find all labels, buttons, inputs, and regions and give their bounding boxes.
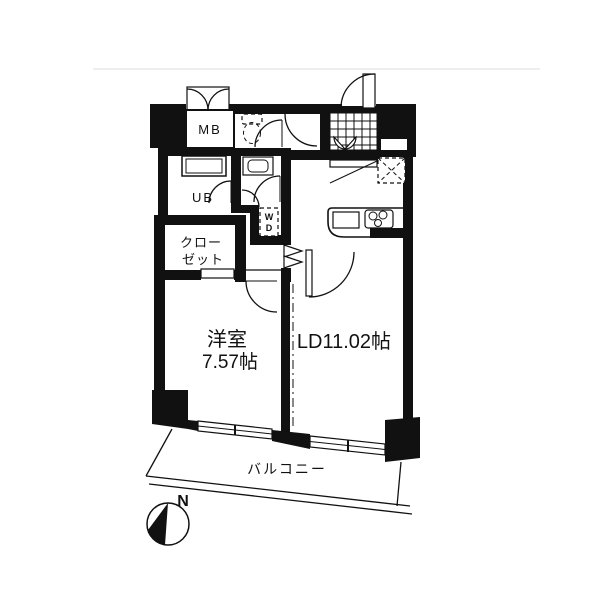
entrance-door-leaf xyxy=(363,74,375,108)
western-room-size-label: 7.57帖 xyxy=(202,351,258,373)
wd-label-w: W xyxy=(265,212,274,222)
entrance-step-edge xyxy=(330,160,377,167)
washer-dryer-box: W D xyxy=(260,208,278,236)
entrance xyxy=(330,74,377,183)
kitchen-sink xyxy=(333,212,359,228)
floorplan-page: MB xyxy=(0,0,614,613)
living-dining-label: LD11.02帖 xyxy=(297,330,391,353)
closet-door xyxy=(201,269,234,278)
closet-label-line2: ゼット xyxy=(182,252,224,267)
compass: N xyxy=(147,493,189,545)
closet-label-line1: クロー xyxy=(180,235,222,250)
floorplan-svg: MB xyxy=(0,0,614,613)
western-room-label: 洋室 xyxy=(207,328,247,351)
toilet-room xyxy=(238,114,283,148)
balcony-label: バルコニー xyxy=(247,461,327,477)
ld-window xyxy=(310,436,385,455)
hall-door-arc xyxy=(285,114,317,146)
washroom-door-arc-small xyxy=(242,190,259,207)
wd-label-d: D xyxy=(266,223,273,233)
western-room-window xyxy=(198,421,272,439)
balcony-right-edge xyxy=(397,462,401,506)
refrigerator-box xyxy=(378,158,405,183)
washroom-door-arc xyxy=(254,176,280,202)
ub-label: UB xyxy=(192,190,214,205)
washroom xyxy=(242,157,280,207)
mb-label: MB xyxy=(198,122,222,137)
balcony-left-edge xyxy=(146,429,172,476)
western-room-door xyxy=(246,281,277,312)
unit-bath: UB xyxy=(182,156,231,205)
meter-box: MB xyxy=(186,87,234,148)
ld-door xyxy=(306,250,354,297)
ld-door-arc xyxy=(309,252,354,297)
folding-door-icon xyxy=(284,245,302,268)
stove-icon xyxy=(365,210,393,228)
compass-north-label: N xyxy=(177,493,189,510)
western-room-door-arc xyxy=(246,281,277,312)
ld-door-leaf xyxy=(306,250,312,296)
